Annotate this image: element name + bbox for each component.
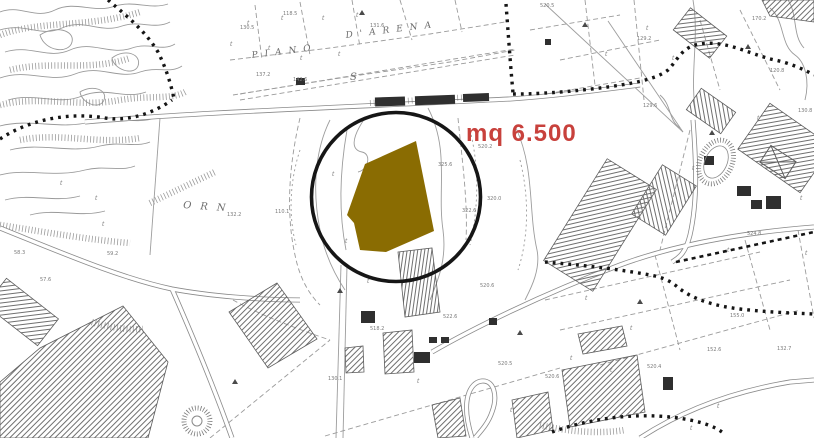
survey-point-icon — [745, 44, 751, 49]
vegetation-icon: t — [805, 250, 808, 257]
map-label: 520.5 — [498, 361, 512, 367]
vegetation-symbols: tttttttttttttttttttttttttttttt — [60, 12, 808, 432]
vegetation-icon: t — [322, 15, 325, 22]
map-label: 59.2 — [107, 251, 118, 257]
building — [429, 337, 437, 343]
map-label: 132.7 — [777, 346, 791, 352]
map-label: 170.2 — [752, 16, 766, 22]
vegetation-icon: t — [605, 51, 608, 58]
survey-point-icon — [337, 288, 343, 293]
map-label: 524.8 — [747, 231, 761, 237]
building — [463, 93, 489, 102]
vegetation-icon: t — [345, 238, 348, 245]
building — [489, 318, 497, 325]
building — [673, 8, 726, 58]
building — [441, 337, 449, 343]
rosette-feature — [184, 408, 210, 434]
survey-point-icon — [637, 299, 643, 304]
building — [544, 159, 657, 292]
building — [663, 377, 673, 390]
map-label: 129.6 — [643, 103, 657, 109]
map-label: 325.6 — [438, 162, 452, 168]
vegetation-icon: t — [672, 55, 675, 62]
map-label: 522.6 — [443, 314, 457, 320]
building — [414, 352, 430, 363]
place-name-s: S — [350, 72, 366, 83]
map-label: 155.0 — [730, 313, 744, 319]
vegetation-icon: t — [570, 355, 573, 362]
map-label: 58.3 — [14, 250, 25, 256]
map-label: 130.8 — [798, 108, 812, 114]
vegetation-icon: t — [630, 325, 633, 332]
parcel-boundaries — [210, 0, 814, 438]
map-label: 520.5 — [540, 3, 554, 9]
map-label: 131.6 — [370, 23, 384, 29]
map-label: 57.6 — [40, 277, 51, 283]
vegetation-icon: t — [510, 407, 513, 414]
vegetation-icon: t — [332, 171, 335, 178]
map-label: 520.6 — [545, 374, 559, 380]
vegetation-icon: t — [646, 25, 649, 32]
vegetation-icon: t — [585, 295, 588, 302]
building — [345, 346, 364, 373]
survey-point-icon — [232, 379, 238, 384]
map-label: 110.1 — [275, 209, 289, 215]
vegetation-icon: t — [230, 41, 233, 48]
building — [737, 186, 751, 196]
map-label: 129.2 — [637, 36, 651, 42]
map-label: 520.2 — [478, 144, 492, 150]
map-label: 130.1 — [328, 376, 342, 382]
building — [512, 392, 553, 438]
vegetation-icon: t — [356, 12, 359, 19]
map-label: 132.2 — [227, 212, 241, 218]
building — [704, 156, 714, 165]
building — [751, 200, 762, 209]
oval-feature — [692, 134, 740, 189]
vegetation-icon: t — [690, 425, 693, 432]
building — [632, 165, 697, 235]
place-name-darena: D'ARENA — [344, 20, 438, 41]
building — [562, 355, 645, 427]
cadastral-map-viewport: mq 6.500 PIANO D'ARENA ORN S 118.5130.51… — [0, 0, 814, 438]
map-label: 137.2 — [256, 72, 270, 78]
building — [383, 330, 414, 374]
building — [415, 95, 455, 105]
map-label: 518.2 — [370, 326, 384, 332]
building — [738, 103, 814, 192]
vegetation-icon: t — [300, 55, 303, 62]
cadastral-map: mq 6.500 PIANO D'ARENA ORN S 118.5130.51… — [0, 0, 814, 438]
vegetation-icon: t — [417, 378, 420, 385]
map-label: 118.5 — [283, 11, 297, 17]
building — [545, 39, 551, 45]
map-label: 520.6 — [480, 283, 494, 289]
vegetation-icon: t — [727, 247, 730, 254]
survey-point-icon — [709, 130, 715, 135]
building — [0, 278, 58, 345]
vegetation-icon: t — [800, 195, 803, 202]
map-label: 322.6 — [462, 208, 476, 214]
area-annotation: mq 6.500 — [466, 120, 577, 147]
building — [375, 96, 405, 106]
vegetation-icon: t — [102, 221, 105, 228]
building — [766, 196, 781, 209]
vegetation-icon: t — [717, 403, 720, 410]
vegetation-icon: t — [338, 51, 341, 58]
map-label: 142.6 — [293, 77, 307, 83]
highlighted-parcel[interactable] — [347, 141, 434, 252]
vegetation-icon: t — [95, 195, 98, 202]
building — [578, 326, 627, 354]
building — [361, 311, 375, 323]
building — [762, 0, 814, 22]
map-label: 152.6 — [707, 347, 721, 353]
survey-point-icon — [582, 22, 588, 27]
survey-point-icon — [359, 10, 365, 15]
building — [432, 398, 466, 438]
map-label: 120.8 — [770, 68, 784, 74]
map-label: 320.0 — [487, 196, 501, 202]
vegetation-icon: t — [60, 180, 63, 187]
map-label: 520.4 — [647, 364, 661, 370]
survey-point-icon — [517, 330, 523, 335]
